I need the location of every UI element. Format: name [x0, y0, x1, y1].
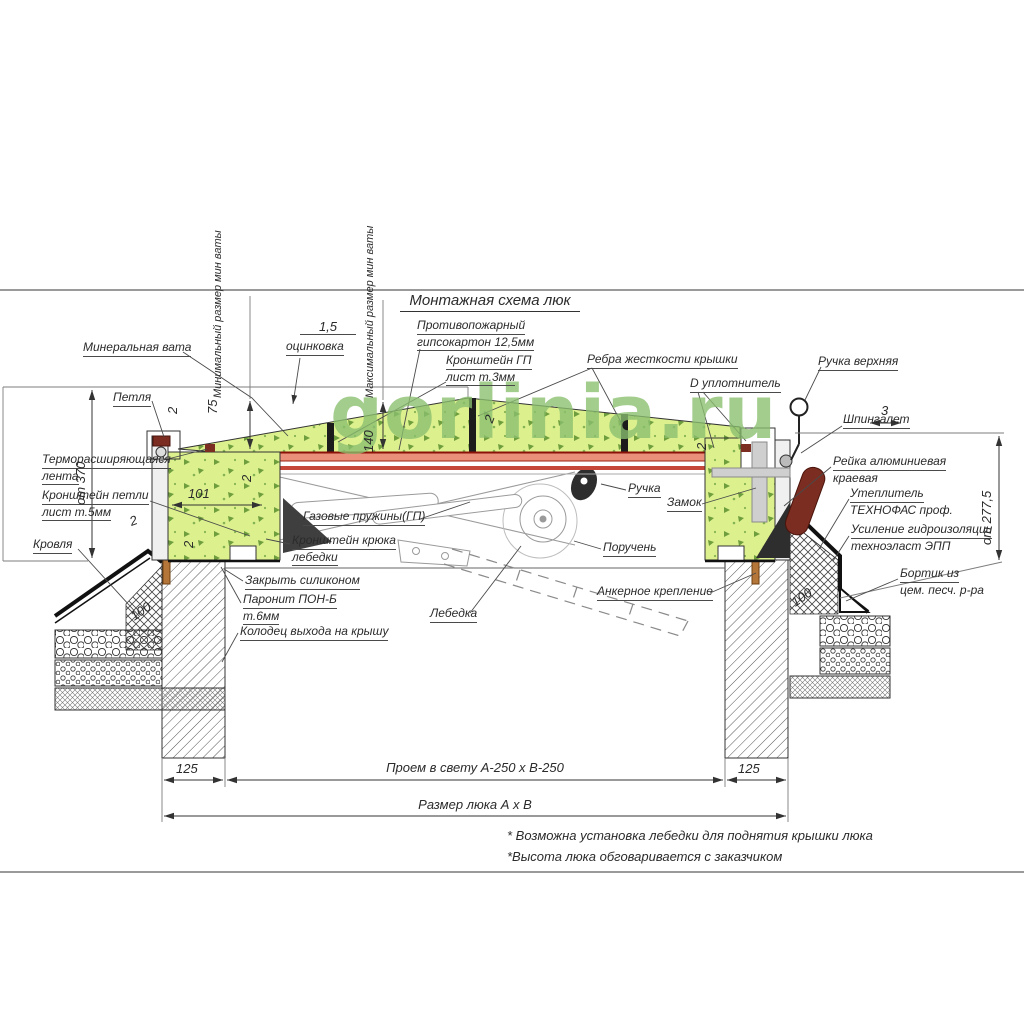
footnote-1: * Возможна установка лебедки для подняти…: [507, 827, 873, 846]
label-winch-hook-line2: лебедки: [292, 550, 338, 567]
dim-2-text: 2: [240, 475, 254, 482]
label-hinge: Петля: [113, 390, 151, 407]
label-mineral-wool: Минеральная вата: [83, 340, 191, 357]
label-hinge-bracket-line2: лист т.5мм: [42, 505, 111, 522]
dim-140-text: 140: [362, 430, 376, 452]
dim-75-text: 75: [206, 400, 220, 414]
label-bracket-gp: Кронштейн ГП лист т.3мм: [446, 353, 532, 386]
latch-roller: [780, 455, 792, 467]
label-cover-ribs: Ребра жесткости крышки: [587, 352, 738, 369]
label-curb-line2: цем. песч. р-ра: [900, 583, 984, 599]
label-edge-rail: Рейка алюминиевая краевая: [833, 454, 946, 486]
label-winch-hook-line1: Кронштейн крюка: [292, 533, 396, 550]
label-bracket-gp-line1: Кронштейн ГП: [446, 353, 532, 370]
label-paronite-line2: т.6мм: [243, 609, 279, 626]
dim-height-right-text: от 277,5: [980, 491, 994, 545]
label-insulation: Утеплитель ТЕХНОФАС проф.: [850, 486, 953, 518]
label-zinc-thickness: 1,5: [300, 320, 356, 335]
label-handle: Ручка: [628, 481, 661, 498]
label-roofing: Кровля: [33, 537, 72, 554]
label-winch: Лебедка: [430, 606, 477, 623]
label-thermo-tape-line1: Терморасширяющаяся: [42, 452, 171, 469]
label-max-wool-size: Максимальный размер мин ваты: [364, 226, 377, 398]
dim-125-right-text: 125: [738, 762, 760, 776]
label-edge-rail-line2: краевая: [833, 471, 878, 487]
label-upper-handle: Ручка верхняя: [818, 354, 898, 371]
label-min-wool-size: Минимальный размер мин ваты: [212, 230, 225, 398]
label-waterproofing-line2: техноэласт ЭПП: [851, 539, 950, 555]
label-fireproof-line1: Противопожарный: [417, 318, 525, 335]
upper-handle-ring: [791, 399, 808, 416]
winch-plate: [398, 540, 470, 566]
label-anchor: Анкерное крепление: [597, 584, 713, 601]
curb-shape: [840, 588, 868, 612]
label-thermo-tape: Терморасширяющаяся лента: [42, 452, 171, 485]
label-silicone: Закрыть силиконом: [245, 573, 360, 590]
dim-hatch-size-text: Размер люка А х В: [375, 798, 575, 812]
dim-2-text: 2: [166, 407, 180, 414]
label-paronite-line1: Паронит ПОН-Б: [243, 592, 337, 609]
seal-left: [205, 444, 215, 452]
label-latch: Шпингалет: [843, 412, 910, 429]
label-zinc: оцинковка: [286, 339, 344, 356]
label-gas-springs: Газовые пружины(ГП): [303, 509, 425, 526]
label-d-seal: D уплотнитель: [690, 376, 781, 393]
label-bracket-gp-line2: лист т.3мм: [446, 370, 515, 387]
technical-drawing: gorlinia.ru Монтажная схема люк Минераль…: [0, 0, 1024, 1024]
dim-opening-text: Проем в свету А-250 х В-250: [325, 761, 625, 775]
label-hinge-bracket-line1: Кронштейн петли: [42, 488, 149, 505]
label-fireproof-line2: гипсокартон 12,5мм: [417, 335, 534, 352]
anchor-bolt-right: [752, 560, 759, 584]
footnote-2: *Высота люка обговаривается с заказчиком: [507, 848, 782, 867]
label-curb-line1: Бортик из: [900, 566, 959, 583]
dim-2-text: 2: [182, 541, 196, 548]
dim-height-left-text: от 370: [74, 462, 88, 505]
label-curb: Бортик из цем. песч. р-ра: [900, 566, 984, 598]
label-roof-exit: Колодец выхода на крышу: [240, 624, 388, 641]
label-edge-rail-line1: Рейка алюминиевая: [833, 454, 946, 471]
anchor-bolt-left: [163, 560, 170, 584]
dim-101-text: 101: [188, 487, 210, 501]
label-waterproofing: Усиление гидроизоляции техноэласт ЭПП: [851, 522, 992, 554]
label-paronite: Паронит ПОН-Б т.6мм: [243, 592, 337, 625]
label-insulation-line2: ТЕХНОФАС проф.: [850, 503, 953, 519]
label-insulation-line1: Утеплитель: [850, 486, 924, 503]
label-waterproofing-line1: Усиление гидроизоляции: [851, 522, 992, 539]
label-lock: Замок: [667, 495, 702, 512]
gypsum-sheet: [230, 466, 742, 470]
label-fireproof: Противопожарный гипсокартон 12,5мм: [417, 318, 534, 351]
label-handrail: Поручень: [603, 540, 656, 557]
lock-bar-horizontal: [712, 468, 790, 477]
dim-2-text: 2: [695, 443, 709, 450]
dim-125-left-text: 125: [176, 762, 198, 776]
drawing-title: Монтажная схема люк: [400, 291, 580, 312]
label-winch-hook: Кронштейн крюка лебедки: [292, 533, 396, 566]
